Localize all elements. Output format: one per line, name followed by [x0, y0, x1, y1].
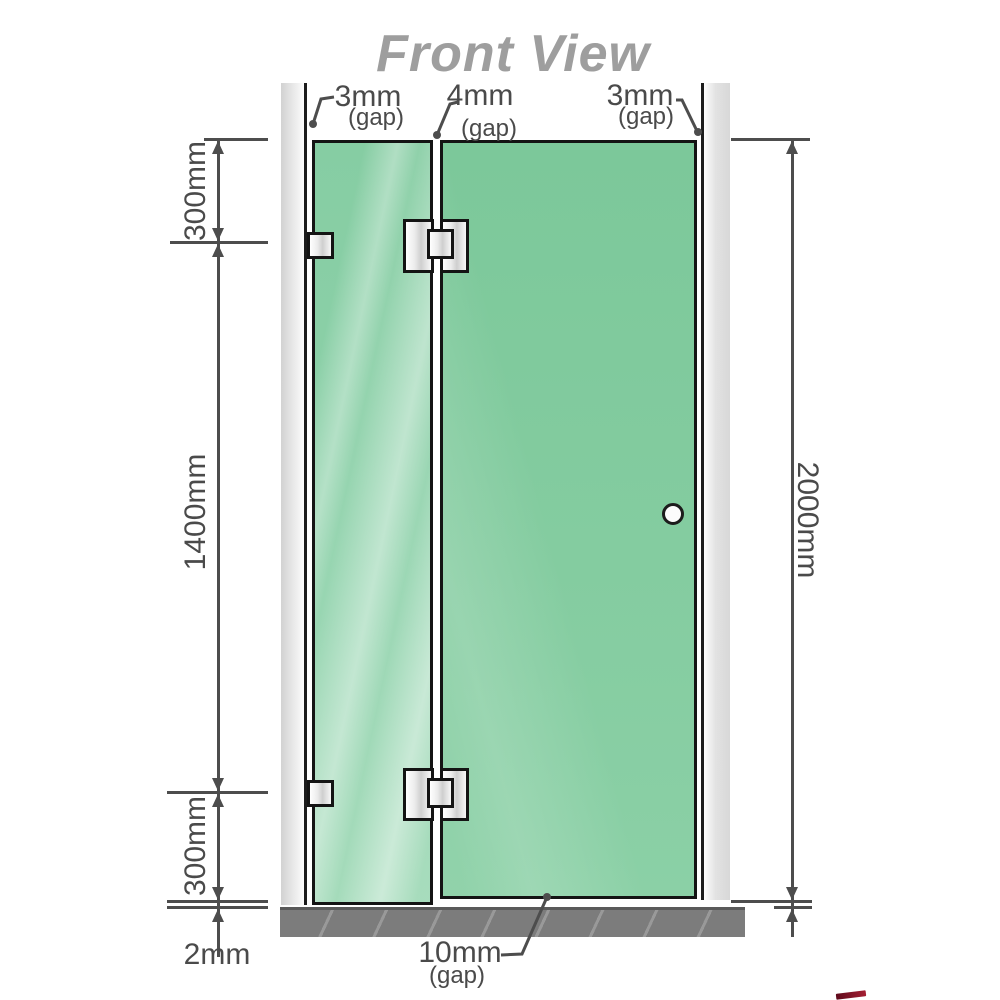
- dimension-tick: [731, 138, 810, 141]
- front-view-diagram: Front View 300mm 1400mm 300mm 2000mm 2mm…: [0, 0, 1000, 1000]
- dim-label-2000mm: 2000mm: [790, 462, 824, 579]
- gap-note: (gap): [618, 103, 674, 131]
- floor-base: [280, 907, 745, 937]
- arrow-up-icon: [212, 909, 224, 922]
- wall-bracket-icon: [307, 780, 334, 807]
- dim-label-2mm: 2mm: [184, 938, 251, 972]
- hinge-knuckle-icon: [427, 229, 454, 259]
- arrow-up-icon: [786, 909, 798, 922]
- diagram-title: Front View: [376, 24, 650, 84]
- dim-label-300mm-upper: 300mm: [179, 141, 213, 241]
- arrow-up-icon: [212, 794, 224, 807]
- gap-label-middle-4mm: 4mm: [447, 79, 514, 113]
- arrow-up-icon: [212, 244, 224, 257]
- dimension-tick: [167, 900, 268, 903]
- right-wall: [704, 83, 730, 900]
- arrow-down-icon: [212, 887, 224, 900]
- watermark-fragment: [836, 990, 867, 1000]
- arrow-up-icon: [212, 141, 224, 154]
- arrow-down-icon: [212, 228, 224, 241]
- arrow-down-icon: [786, 887, 798, 900]
- door-glass-panel: [440, 140, 697, 899]
- arrow-up-icon: [786, 141, 798, 154]
- door-knob-icon: [662, 503, 684, 525]
- dim-label-300mm-lower: 300mm: [179, 796, 213, 896]
- left-wall: [281, 83, 304, 905]
- hinge-knuckle-icon: [427, 778, 454, 808]
- dimension-tick: [731, 900, 812, 903]
- gap-note: (gap): [429, 962, 485, 990]
- left-dimension-line: [217, 140, 220, 957]
- dim-label-1400mm: 1400mm: [179, 454, 213, 571]
- gap-note: (gap): [348, 104, 404, 132]
- wall-bracket-icon: [307, 232, 334, 259]
- gap-note: (gap): [461, 115, 517, 143]
- arrow-down-icon: [212, 778, 224, 791]
